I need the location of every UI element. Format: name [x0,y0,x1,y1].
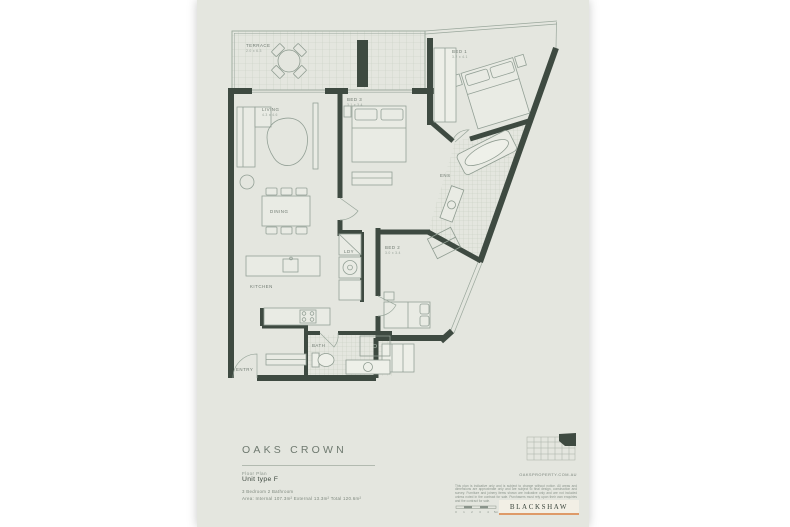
room-label: BED 1 [452,49,467,54]
scale-tick: 1 [463,510,465,514]
bed3-furniture [344,106,406,185]
sheet-label: Floor Plan [242,471,267,476]
unit-configuration: 3 Bedroom 2 Bathroom [242,489,293,494]
room-label: ENTRY [236,367,253,372]
brand-logo: BLACKSHAW [499,500,579,515]
project-title: OAKS CROWN [242,444,347,456]
room-label: DINING [270,209,288,214]
unit-type: Unit type F [242,476,278,483]
scale-tick: 0 [455,510,457,514]
room-dims: 4.3 x 4.6 [262,113,278,117]
room-label: BATH [312,343,325,348]
room-dims: 3.2 x 4.1 [452,55,468,59]
terrace-planter [357,40,368,87]
key-plan [525,433,577,461]
bed1-furniture [434,48,540,132]
screenshot-canvas: TERRACE LIVING DINING KITCHEN BED 3 BED … [0,0,790,527]
room-label: BED 3 [347,97,362,102]
room-label: KITCHEN [250,284,273,289]
room-label: BED 2 [385,245,400,250]
title-divider [242,465,375,466]
unit-areas: Area: Internal 107.3m² External 13.3m² T… [242,496,361,501]
scale-tick: 4 [487,510,489,514]
scale-tick: 5m [494,510,499,514]
key-plan-unit-highlight [559,433,576,446]
scale-tick: 3 [479,510,481,514]
room-label: TERRACE [246,43,270,48]
room-label: LDY [344,249,354,254]
terrace-area [232,31,425,90]
room-dims: 3.0 x 3.4 [385,251,401,255]
room-dims: 2.0 x 6.3 [246,49,262,53]
room-label: LIVING [262,107,279,112]
brochure-page: TERRACE LIVING DINING KITCHEN BED 3 BED … [197,0,589,527]
scale-bar: 0 1 2 3 4 5m [455,504,499,516]
entry-area [266,354,306,365]
room-label: ENS [440,173,451,178]
website: OAKSPROPERTY.COM.AU [455,472,577,477]
scale-tick: 2 [471,510,473,514]
room-dims: 3.1 x 3.4 [347,103,363,107]
